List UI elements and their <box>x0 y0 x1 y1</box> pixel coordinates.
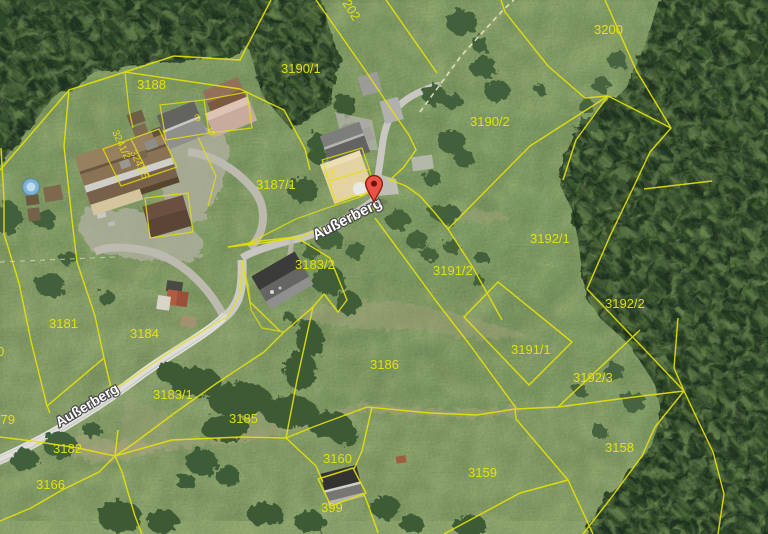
svg-text:3181: 3181 <box>49 316 78 331</box>
svg-text:3159: 3159 <box>468 465 497 480</box>
svg-text:3160: 3160 <box>323 451 352 466</box>
svg-text:3179: 3179 <box>0 412 15 427</box>
svg-text:3191/2: 3191/2 <box>433 263 473 278</box>
svg-text:3186: 3186 <box>370 357 399 372</box>
svg-text:0: 0 <box>0 344 4 359</box>
svg-text:3191/1: 3191/1 <box>511 342 551 357</box>
svg-text:3166: 3166 <box>36 477 65 492</box>
svg-text:399: 399 <box>321 500 343 515</box>
svg-text:3190/2: 3190/2 <box>470 114 510 129</box>
svg-text:3190/1: 3190/1 <box>281 61 321 76</box>
svg-text:3158: 3158 <box>605 440 634 455</box>
svg-text:3188: 3188 <box>137 77 166 92</box>
svg-text:3187/1: 3187/1 <box>256 177 296 192</box>
svg-text:3182: 3182 <box>53 441 82 456</box>
svg-text:3192/3: 3192/3 <box>573 370 613 385</box>
svg-text:3192/1: 3192/1 <box>530 231 570 246</box>
svg-text:3200: 3200 <box>594 22 623 37</box>
svg-text:3183/1: 3183/1 <box>153 387 193 402</box>
svg-text:3192/2: 3192/2 <box>605 296 645 311</box>
svg-text:3183/2: 3183/2 <box>295 257 335 272</box>
svg-text:3184: 3184 <box>130 326 159 341</box>
svg-text:3185: 3185 <box>229 411 258 426</box>
